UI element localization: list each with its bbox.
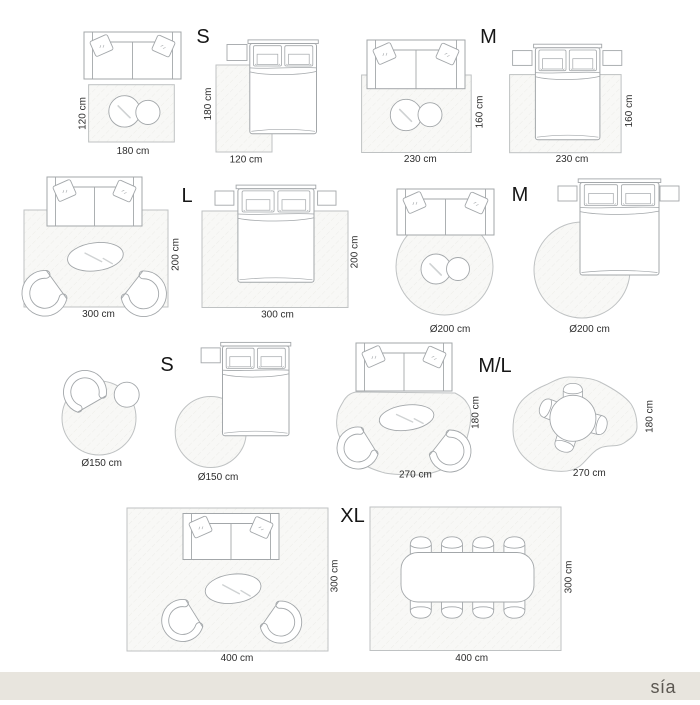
svg-text:S: S xyxy=(196,26,209,48)
svg-text:200 cm: 200 cm xyxy=(350,236,361,269)
svg-text:400 cm: 400 cm xyxy=(221,653,254,664)
svg-text:160 cm: 160 cm xyxy=(475,96,486,129)
svg-text:400 cm: 400 cm xyxy=(455,653,488,664)
svg-text:270 cm: 270 cm xyxy=(573,468,606,479)
svg-text:120 cm: 120 cm xyxy=(230,155,263,166)
svg-text:Ø200 cm: Ø200 cm xyxy=(430,324,471,335)
svg-text:300 cm: 300 cm xyxy=(261,310,294,321)
svg-text:Ø150 cm: Ø150 cm xyxy=(81,458,122,469)
svg-text:M/L: M/L xyxy=(478,355,511,377)
svg-text:XL: XL xyxy=(340,505,364,527)
svg-text:180 cm: 180 cm xyxy=(471,396,482,429)
svg-text:sía: sía xyxy=(650,677,676,697)
svg-text:120 cm: 120 cm xyxy=(78,97,89,130)
svg-text:M: M xyxy=(512,184,529,206)
svg-text:S: S xyxy=(160,354,173,376)
svg-text:230 cm: 230 cm xyxy=(404,154,437,165)
svg-text:M: M xyxy=(480,26,497,48)
svg-text:180 cm: 180 cm xyxy=(117,146,150,157)
svg-text:230 cm: 230 cm xyxy=(556,154,589,165)
svg-text:Ø150 cm: Ø150 cm xyxy=(198,472,239,483)
svg-text:300 cm: 300 cm xyxy=(330,560,341,593)
svg-text:200 cm: 200 cm xyxy=(171,238,182,271)
svg-text:300 cm: 300 cm xyxy=(82,309,115,320)
svg-text:160 cm: 160 cm xyxy=(624,95,635,128)
svg-text:Ø200 cm: Ø200 cm xyxy=(569,324,610,335)
svg-text:180 cm: 180 cm xyxy=(203,88,214,121)
svg-text:180 cm: 180 cm xyxy=(645,400,656,433)
svg-text:270 cm: 270 cm xyxy=(399,469,432,480)
svg-text:L: L xyxy=(181,185,192,207)
svg-text:300 cm: 300 cm xyxy=(564,561,575,594)
